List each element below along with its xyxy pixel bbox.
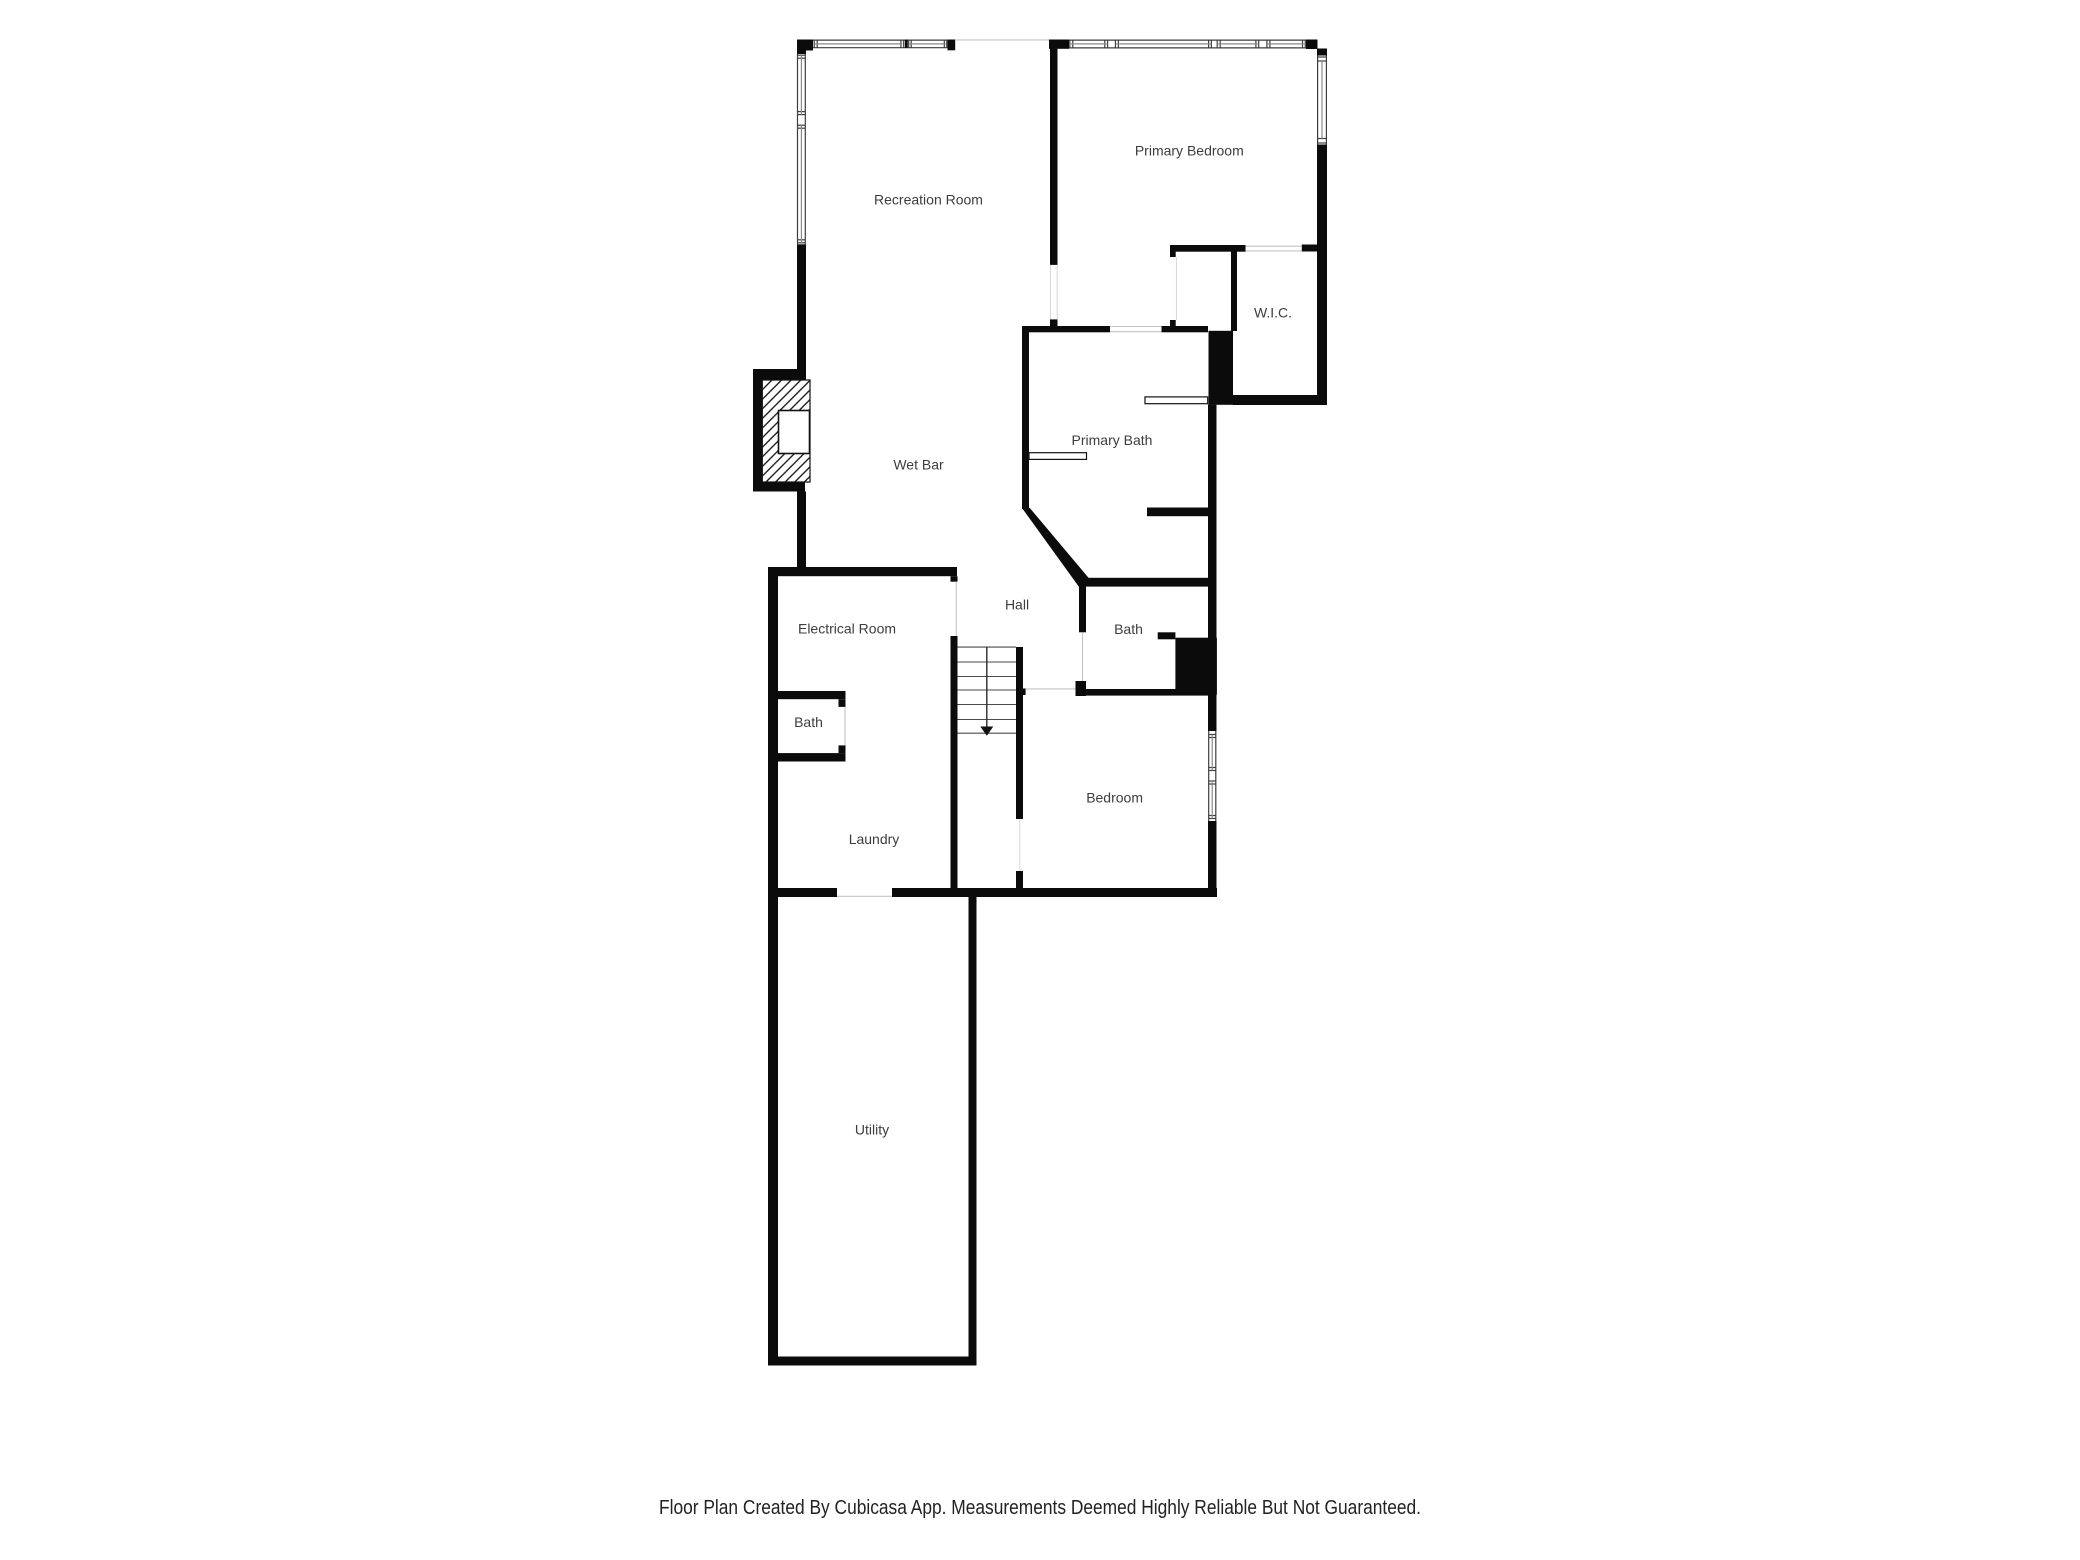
svg-text:W.I.C.: W.I.C. xyxy=(1254,304,1292,320)
svg-text:Electrical Room: Electrical Room xyxy=(798,620,896,636)
svg-text:Floor Plan Created By Cubicasa: Floor Plan Created By Cubicasa App. Meas… xyxy=(659,1496,1421,1519)
svg-text:Bath: Bath xyxy=(1114,621,1143,637)
svg-text:Utility: Utility xyxy=(855,1121,889,1137)
svg-text:Bath: Bath xyxy=(794,714,823,730)
svg-text:Bedroom: Bedroom xyxy=(1086,789,1143,805)
svg-text:Wet Bar: Wet Bar xyxy=(893,457,944,473)
svg-text:Primary Bedroom: Primary Bedroom xyxy=(1135,143,1244,159)
svg-text:Hall: Hall xyxy=(1005,596,1029,612)
svg-text:Recreation Room: Recreation Room xyxy=(874,191,983,207)
svg-text:Laundry: Laundry xyxy=(849,831,900,847)
svg-text:Primary Bath: Primary Bath xyxy=(1072,432,1153,448)
